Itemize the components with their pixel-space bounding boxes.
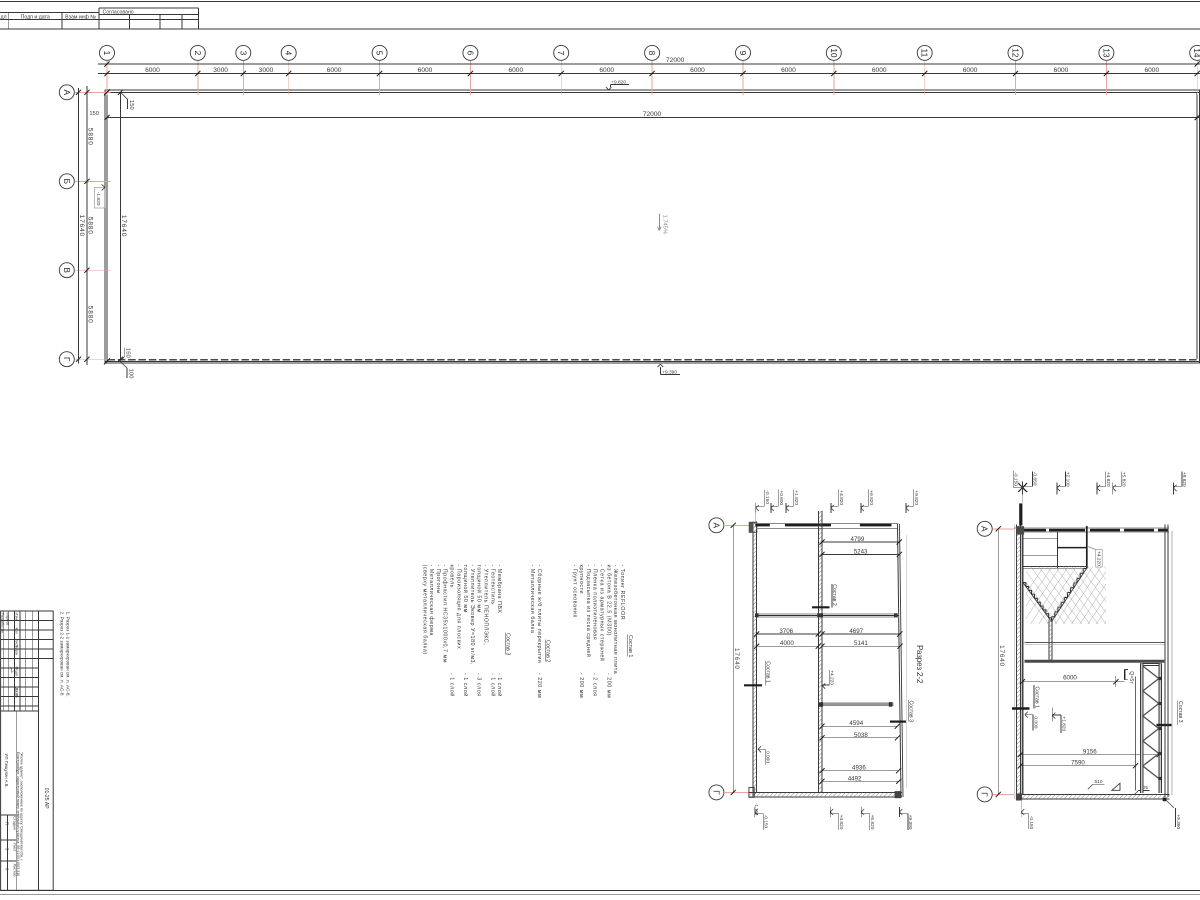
svg-text:- Утеплитель Эковер У=180 кг/м: - Утеплитель Эковер У=180 кг/м3, <box>469 565 475 666</box>
svg-text:3706: 3706 <box>779 628 793 635</box>
svg-text:- 1 слой: - 1 слой <box>462 673 469 697</box>
svg-text:6000: 6000 <box>145 67 160 74</box>
svg-text:6000: 6000 <box>781 67 796 74</box>
svg-text:3000: 3000 <box>259 67 274 74</box>
svg-text:5141: 5141 <box>854 640 868 647</box>
svg-text:6000: 6000 <box>1054 67 1069 74</box>
svg-text:10: 10 <box>829 48 839 58</box>
svg-text:№док: №док <box>15 645 20 656</box>
svg-text:Лист: Лист <box>13 843 18 852</box>
svg-text:из бетона В 22,5 (М300): из бетона В 22,5 (М300) <box>605 565 611 636</box>
svg-text:6000: 6000 <box>1144 67 1159 74</box>
svg-text:П: П <box>5 822 10 825</box>
svg-text:В: В <box>62 267 72 273</box>
svg-text:- 1 слой: - 1 слой <box>489 673 496 697</box>
svg-text:+4.220: +4.220 <box>829 670 835 685</box>
svg-text:Состав 3: Состав 3 <box>1177 701 1183 723</box>
svg-text:+4.820: +4.820 <box>1105 472 1111 487</box>
svg-text:- Подзасыпка из песка средней: - Подзасыпка из песка средней <box>585 565 592 658</box>
svg-text:17640: 17640 <box>998 645 1005 667</box>
svg-text:1: 1 <box>102 51 112 56</box>
svg-text:- Профнастил НС35х1000х0,7 мм: - Профнастил НС35х1000х0,7 мм <box>442 565 448 663</box>
svg-text:Листов: Листов <box>13 864 18 877</box>
svg-text:- 220 мм: - 220 мм <box>536 673 542 698</box>
svg-text:8: 8 <box>647 51 657 56</box>
svg-text:01.25: 01.25 <box>15 688 19 698</box>
svg-text:5880: 5880 <box>87 306 94 324</box>
svg-text:Разработал: Разработал <box>0 613 4 634</box>
svg-text:5880: 5880 <box>87 217 94 235</box>
svg-text:- Грунт основания: - Грунт основания <box>571 565 577 618</box>
svg-text:- Мембрана ПВХ: - Мембрана ПВХ <box>496 565 502 614</box>
svg-text:Изм: Изм <box>15 613 20 621</box>
svg-text:5: 5 <box>375 51 385 56</box>
svg-text:А: А <box>62 90 72 96</box>
svg-text:5: 5 <box>5 848 10 851</box>
svg-text:-0.150: -0.150 <box>1028 816 1034 830</box>
svg-text:6: 6 <box>5 868 10 871</box>
svg-text:9156: 9156 <box>1083 749 1097 756</box>
svg-text:150: 150 <box>128 100 134 110</box>
svg-text:01-25 АР: 01-25 АР <box>43 788 49 810</box>
svg-text:Кол: Кол <box>15 628 20 635</box>
svg-text:Согласовано: Согласовано <box>103 10 134 16</box>
svg-text:1. Разрез 1-1 замаркирован см.: 1. Разрез 1-1 замаркирован см. л. АС-8. <box>65 612 70 697</box>
svg-text:13: 13 <box>1101 48 1111 58</box>
svg-text:0.000: 0.000 <box>765 751 771 763</box>
svg-text:-0.150: -0.150 <box>1012 472 1018 486</box>
svg-text:4492: 4492 <box>848 775 862 782</box>
svg-text:+9.390: +9.390 <box>662 369 677 375</box>
svg-text:6000: 6000 <box>872 67 887 74</box>
svg-text:+6.820: +6.820 <box>868 490 874 505</box>
svg-text:11: 11 <box>920 49 930 58</box>
svg-text:-1.150: -1.150 <box>754 803 759 816</box>
svg-text:6000: 6000 <box>418 67 433 74</box>
svg-text:+9.820: +9.820 <box>611 79 626 85</box>
svg-text:Подп: Подп <box>15 667 20 677</box>
svg-text:6000: 6000 <box>963 67 978 74</box>
svg-text:0.000: 0.000 <box>1032 716 1038 728</box>
svg-text:4799: 4799 <box>851 536 865 543</box>
svg-text:2. Разрез 2-2 замаркирован см.: 2. Разрез 2-2 замаркирован см. л. АС-8 <box>60 612 65 696</box>
svg-text:6000: 6000 <box>599 67 614 74</box>
svg-text:- Пленка полиэтиленовая: - Пленка полиэтиленовая <box>592 565 598 641</box>
svg-text:17640: 17640 <box>120 215 127 237</box>
svg-text:Состав 2: Состав 2 <box>831 584 837 606</box>
svg-text:- 1 слой: - 1 слой <box>449 673 456 697</box>
svg-text:100: 100 <box>127 369 133 379</box>
svg-text:+2.100: +2.100 <box>1065 472 1071 487</box>
svg-text:+9.820: +9.820 <box>1181 472 1187 487</box>
svg-text:- Прогоны: - Прогоны <box>435 565 441 594</box>
svg-text:Г: Г <box>62 357 72 362</box>
svg-text:Взам инф №: Взам инф № <box>65 14 96 20</box>
svg-text:+1.820: +1.820 <box>793 490 799 505</box>
svg-text:- Металлическая ферма: - Металлическая ферма <box>428 565 434 636</box>
svg-text:толщиной 50 мм: толщиной 50 мм <box>462 565 469 613</box>
svg-text:150: 150 <box>125 348 131 358</box>
svg-text:- 3 слоя: - 3 слоя <box>476 673 482 697</box>
svg-text:- 200 мм: - 200 мм <box>605 673 611 698</box>
svg-text:+9.390: +9.390 <box>1175 814 1181 829</box>
svg-text:Состав 1: Состав 1 <box>1033 687 1039 709</box>
svg-text:3000: 3000 <box>213 67 228 74</box>
svg-text:Q=5т: Q=5т <box>1128 671 1134 684</box>
svg-text:5038: 5038 <box>854 732 868 739</box>
svg-text:150: 150 <box>89 111 99 117</box>
svg-text:- Топинг REFLOOR: - Топинг REFLOOR <box>619 565 625 621</box>
svg-text:+4.820: +4.820 <box>838 490 844 505</box>
svg-text:- Железобетонная монолитная пл: - Железобетонная монолитная плита <box>612 565 618 675</box>
svg-text:- Утеплитель ПЕНОПЛЭКС,: - Утеплитель ПЕНОПЛЭКС, <box>483 565 489 646</box>
svg-text:- Геотекстиль: - Геотекстиль <box>489 565 495 605</box>
svg-text:-1.820: -1.820 <box>95 192 101 206</box>
svg-text:крупности: крупности <box>578 565 584 595</box>
svg-text:дл: дл <box>0 14 6 20</box>
svg-text:-0.150: -0.150 <box>763 815 769 829</box>
svg-text:- Металлическая балка: - Металлическая балка <box>529 565 535 634</box>
svg-text:Наумов: Наумов <box>6 613 10 626</box>
svg-text:Подп и дата: Подп и дата <box>21 14 50 20</box>
svg-text:+9.390: +9.390 <box>907 815 913 830</box>
svg-text:+9.820: +9.820 <box>913 490 919 505</box>
svg-text:6000: 6000 <box>508 67 523 74</box>
svg-text:9: 9 <box>738 51 748 56</box>
svg-text:5880: 5880 <box>87 128 94 146</box>
svg-text:+4.220: +4.220 <box>1095 551 1101 566</box>
svg-text:Г: Г <box>980 792 990 797</box>
svg-text:6000: 6000 <box>327 67 342 74</box>
svg-text:+4.820: +4.820 <box>838 815 844 830</box>
svg-text:6: 6 <box>465 51 475 56</box>
svg-text:- 200 мм: - 200 мм <box>578 673 584 698</box>
svg-text:3: 3 <box>238 51 248 56</box>
svg-text:+0.800: +0.800 <box>778 490 784 505</box>
svg-text:6000: 6000 <box>690 67 705 74</box>
svg-text:4594: 4594 <box>849 720 863 727</box>
svg-text:+5.820: +5.820 <box>1120 472 1126 487</box>
svg-text:кровель: кровель <box>449 565 455 588</box>
svg-text:4936: 4936 <box>852 765 866 772</box>
svg-text:- 2 слоя: - 2 слоя <box>592 673 598 697</box>
svg-text:17640: 17640 <box>733 648 740 670</box>
svg-text:5243: 5243 <box>854 548 868 555</box>
svg-text:- Пароизоляция для плоских: - Пароизоляция для плоских <box>455 565 461 650</box>
svg-text:А: А <box>711 523 721 529</box>
svg-text:12: 12 <box>1011 48 1021 58</box>
svg-text:14: 14 <box>1192 48 1200 58</box>
svg-text:-0.150: -0.150 <box>764 490 770 504</box>
svg-text:толщиной 50 мм: толщиной 50 мм <box>476 565 483 613</box>
svg-text:7590: 7590 <box>1071 760 1085 767</box>
svg-text:4000: 4000 <box>780 640 794 647</box>
svg-text:(сверху металлическая балка): (сверху металлическая балка) <box>421 565 427 655</box>
svg-text:-0.850: -0.850 <box>1032 472 1038 486</box>
svg-text:+5.820: +5.820 <box>869 815 875 830</box>
svg-text:17640: 17640 <box>78 215 85 237</box>
svg-text:Состав 1: Состав 1 <box>765 661 771 683</box>
svg-text:6000: 6000 <box>1063 675 1077 682</box>
svg-text:Разрез 2-2: Разрез 2-2 <box>915 645 924 684</box>
svg-text:4: 4 <box>284 51 294 56</box>
svg-text:+1.820: +1.820 <box>1060 716 1066 731</box>
svg-text:- 1 слой: - 1 слой <box>496 673 503 697</box>
svg-text:72000: 72000 <box>666 57 685 64</box>
svg-text:Стадия: Стадия <box>13 816 18 830</box>
svg-text:72000: 72000 <box>643 111 662 118</box>
svg-text:- Сетка из арматурных стержней: - Сетка из арматурных стержней <box>599 565 606 662</box>
svg-text:А: А <box>980 526 990 532</box>
svg-text:7: 7 <box>556 51 566 56</box>
svg-text:1.745%: 1.745% <box>661 215 667 235</box>
svg-text:Екатеринбург, кадастровый номе: Екатеринбург, кадастровый номер земельно… <box>16 752 20 876</box>
svg-text:2: 2 <box>193 51 203 56</box>
svg-text:Б: Б <box>62 179 72 185</box>
svg-text:Г: Г <box>711 790 721 795</box>
svg-text:- Сборные ж/б плиты перекрытия: - Сборные ж/б плиты перекрытия <box>536 565 542 664</box>
svg-text:Состав 3: Состав 3 <box>907 701 913 723</box>
svg-text:4697: 4697 <box>849 628 863 635</box>
svg-text:ИП Пищулин А.В.: ИП Пищулин А.В. <box>4 754 9 788</box>
